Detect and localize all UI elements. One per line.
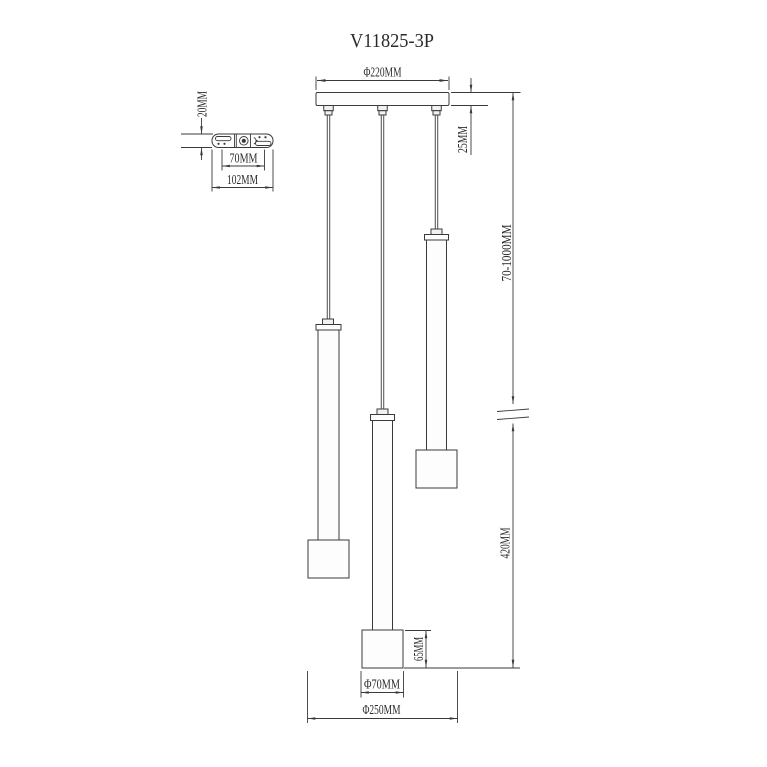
dim-label-bracket-length: 102MM: [227, 172, 258, 187]
arrowhead: [512, 424, 515, 432]
lamp-cap: [323, 319, 334, 325]
suspension-cord: [435, 115, 438, 229]
dim-label-lower-section-height: 420MM: [498, 528, 513, 559]
lamp-holder-rim: [371, 415, 395, 421]
bracket-screw-hole: [264, 136, 266, 138]
lamp-shade: [362, 630, 403, 668]
lamp-shade: [416, 450, 457, 488]
pendant-center: [362, 115, 403, 668]
dim-label-shade-height: 65MM: [411, 637, 426, 661]
lamp-tube: [427, 240, 447, 450]
dim-label-overall-diameter: Φ250MM: [363, 702, 401, 717]
dim-label-suspension-range: 70-1000MM: [499, 225, 514, 282]
arrowhead: [512, 93, 515, 101]
grip-bottom: [325, 111, 332, 115]
dim-label-canopy-width: Φ220MM: [364, 65, 402, 80]
lamp-holder-rim: [316, 325, 341, 331]
dim-suspension-range: 70-1000MM: [497, 93, 529, 420]
arrowhead: [212, 186, 220, 189]
dim-bracket-hole-spacing: 70MM: [222, 150, 265, 171]
arrowhead: [265, 186, 273, 189]
arrowhead: [470, 106, 473, 114]
suspension-cord: [327, 115, 330, 319]
drawing-title: V11825-3P: [350, 30, 434, 52]
grip-top: [324, 106, 334, 111]
dim-label-canopy-thickness: 25MM: [455, 126, 470, 153]
cord-grip: [324, 106, 334, 116]
arrowhead: [308, 717, 316, 720]
dim-label-bracket-hole-spacing: 70MM: [230, 151, 258, 166]
dim-canopy-thickness: 25MM: [451, 78, 521, 155]
lamp-tube: [318, 330, 339, 540]
dim-shade-height: 65MM: [405, 631, 431, 668]
break-mark: [497, 417, 529, 420]
grip-top: [432, 106, 442, 111]
grip-top: [378, 106, 388, 111]
dim-shade-diameter: Φ70MM: [361, 671, 404, 698]
arrowhead: [257, 165, 265, 168]
arrowhead: [317, 79, 326, 82]
arrowhead: [450, 717, 458, 720]
arrowhead: [512, 396, 515, 404]
bracket-screw-hole: [258, 136, 260, 138]
arrowhead: [440, 79, 449, 82]
dim-canopy-width: Φ220MM: [316, 65, 449, 91]
break-mark: [497, 409, 529, 412]
canopy-plate: [316, 93, 449, 106]
pendant-right: [416, 115, 457, 488]
bracket-screw-hole: [217, 143, 219, 145]
dim-label-shade-diameter: Φ70MM: [364, 677, 400, 692]
lamp-shade: [308, 540, 349, 578]
arrowhead: [200, 126, 203, 134]
arrowhead: [200, 148, 203, 156]
dim-label-bracket-height: 20MM: [195, 91, 210, 117]
lamp-tube: [373, 421, 393, 631]
arrowhead: [512, 660, 515, 668]
cord-grip: [432, 106, 442, 116]
grip-bottom: [379, 111, 386, 115]
suspension-cord: [381, 115, 384, 409]
bracket-center-hole-inner: [242, 139, 246, 143]
grip-bottom: [433, 111, 440, 115]
lamp-dimension-drawing: V11825-3P 20MM 70MM: [0, 0, 767, 767]
technical-drawing-canvas: V11825-3P 20MM 70MM: [0, 0, 767, 767]
cord-grip: [378, 106, 388, 116]
dim-bracket-height: 20MM: [181, 91, 213, 160]
mounting-bracket-view: [212, 134, 273, 148]
arrowhead: [470, 85, 473, 93]
bracket-screw-hole: [223, 143, 225, 145]
arrowhead: [396, 691, 404, 694]
lamp-cap: [377, 409, 388, 415]
ceiling-canopy: [316, 93, 449, 116]
pendant-left: [308, 115, 349, 578]
lamp-holder-rim: [425, 235, 449, 241]
arrowhead: [361, 691, 369, 694]
lamp-cap: [431, 229, 442, 235]
